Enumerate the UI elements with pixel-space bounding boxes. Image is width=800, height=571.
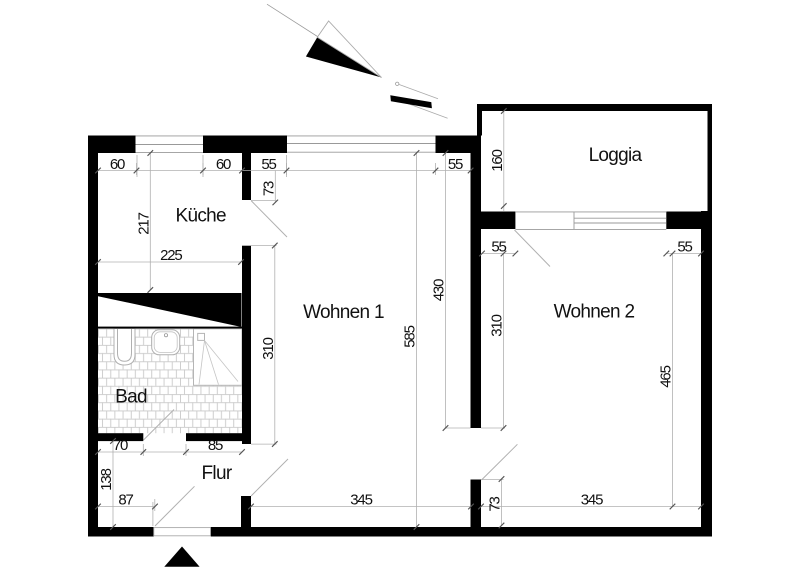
svg-text:85: 85 [208,437,223,454]
svg-text:310: 310 [260,337,277,359]
svg-text:73: 73 [487,497,504,512]
svg-text:70: 70 [113,437,128,454]
svg-text:345: 345 [581,492,603,509]
svg-text:Flur: Flur [202,463,233,484]
svg-text:Bad: Bad [115,387,147,408]
svg-text:217: 217 [135,212,152,234]
svg-text:60: 60 [216,156,231,173]
svg-text:Wohnen 1: Wohnen 1 [303,302,384,323]
svg-text:160: 160 [489,149,506,171]
svg-text:55: 55 [261,156,276,173]
svg-text:55: 55 [491,239,506,256]
svg-text:430: 430 [431,279,448,301]
svg-text:60: 60 [110,156,125,173]
svg-text:55: 55 [677,239,692,256]
svg-text:310: 310 [489,314,506,336]
svg-text:585: 585 [402,325,419,347]
svg-text:345: 345 [350,492,372,509]
svg-text:Loggia: Loggia [589,145,643,166]
svg-text:465: 465 [658,365,675,387]
svg-text:Küche: Küche [176,206,227,227]
svg-text:87: 87 [118,492,133,509]
svg-text:73: 73 [260,181,277,196]
svg-text:Wohnen 2: Wohnen 2 [554,302,635,323]
svg-text:55: 55 [448,156,463,173]
svg-text:138: 138 [98,468,115,490]
svg-text:225: 225 [160,247,182,264]
